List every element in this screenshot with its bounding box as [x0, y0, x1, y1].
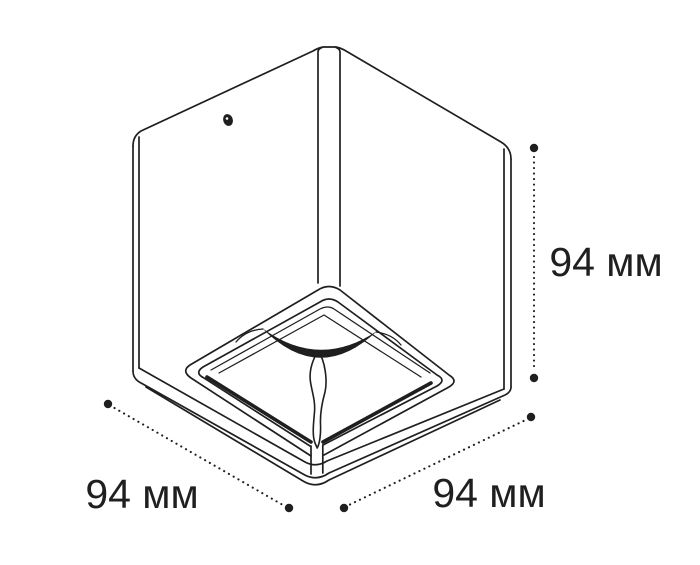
dimension-drawing-canvas: 94 мм 94 мм 94 мм	[0, 0, 700, 565]
cube-body-outline	[133, 47, 511, 389]
dimension-endpoint-dot	[530, 374, 538, 382]
height-dimension: 94 мм	[530, 144, 663, 382]
height-dimension-label: 94 мм	[549, 239, 662, 285]
dimension-endpoint-dot	[104, 400, 112, 408]
dimension-endpoint-dot	[530, 144, 538, 152]
cavity-shadow-right	[323, 383, 431, 442]
recessed-lens-assembly	[186, 287, 454, 475]
dimension-endpoint-dot	[527, 413, 535, 421]
reflector-corner-spine	[310, 351, 326, 448]
dimension-endpoint-dot	[340, 504, 348, 512]
cube-top-edges	[133, 47, 511, 159]
width-dimension: 94 мм	[85, 400, 293, 517]
mounting-hole-dot	[222, 113, 235, 127]
cube-front-corner-left-line	[318, 48, 322, 284]
dimension-endpoint-dot	[285, 504, 293, 512]
depth-dimension-label: 94 мм	[432, 470, 545, 516]
luminaire-technical-drawing: 94 мм 94 мм 94 мм	[0, 0, 700, 565]
depth-dimension: 94 мм	[340, 413, 546, 516]
cube-front-corner-right-line	[336, 48, 340, 287]
width-dimension-label: 94 мм	[85, 471, 198, 517]
